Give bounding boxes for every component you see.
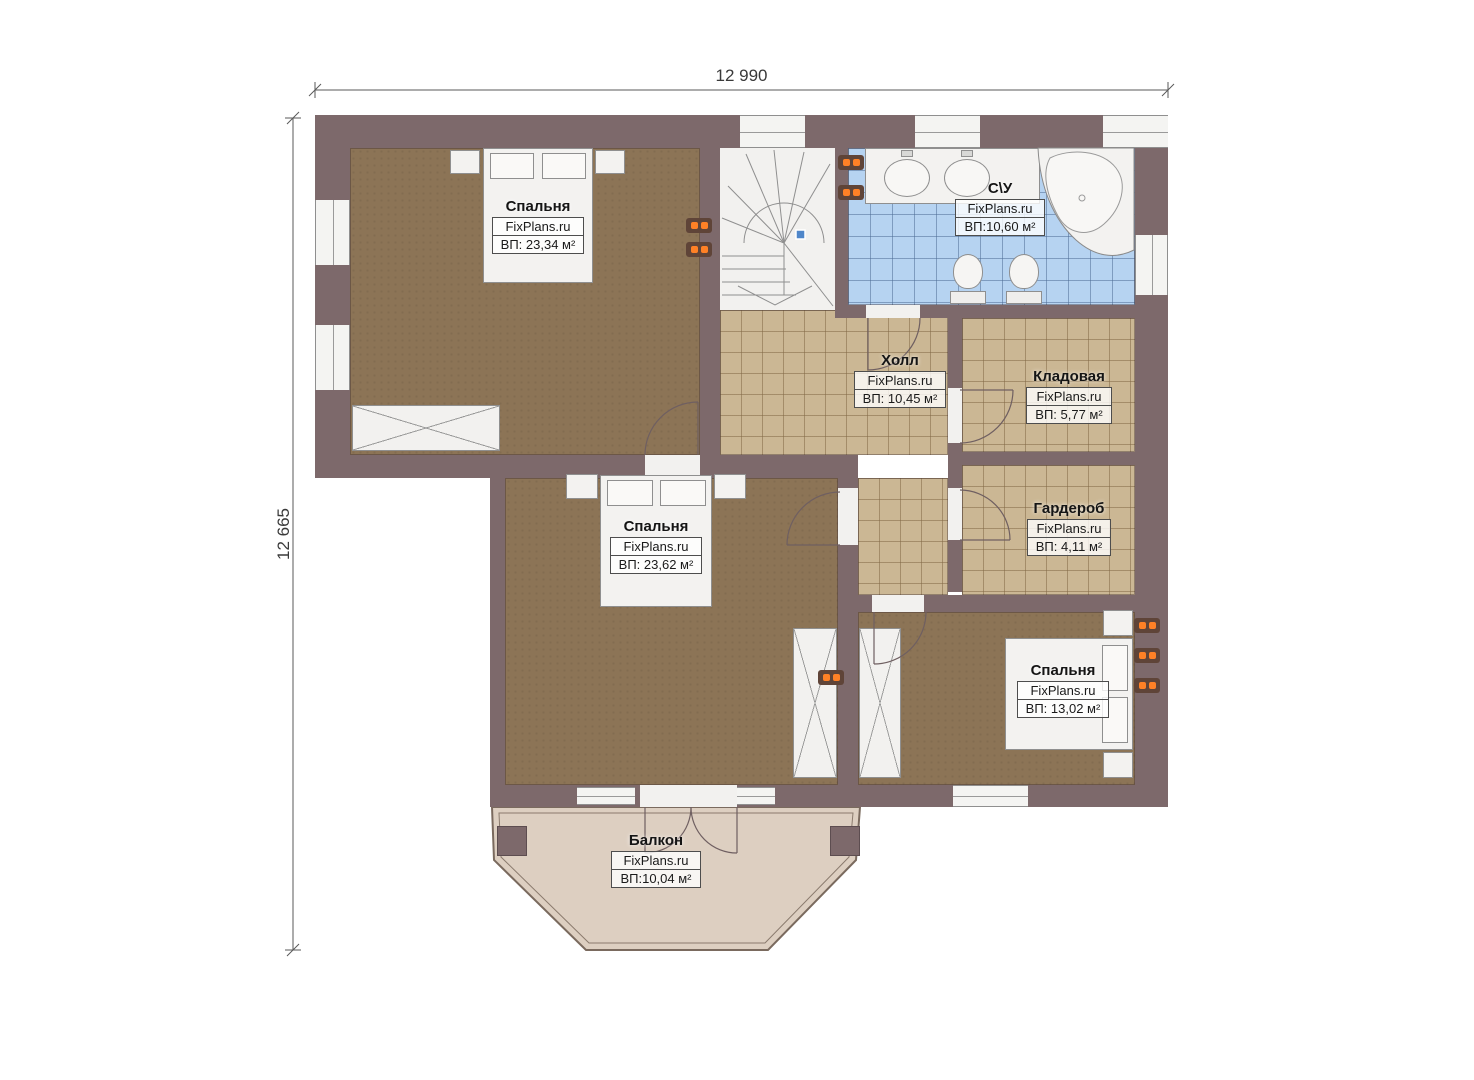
wall-segment [700, 115, 720, 478]
radiator-icon [838, 155, 864, 170]
room-label-storage: Кладовая FixPlans.ru ВП: 5,77 м² [1008, 368, 1130, 424]
radiator-icon [838, 185, 864, 200]
brand-watermark: FixPlans.ru [1018, 682, 1109, 699]
wall-segment [315, 115, 350, 478]
radiator-icon [818, 670, 844, 685]
faucet-icon [961, 150, 973, 157]
window [315, 200, 350, 265]
closet [352, 405, 500, 451]
window [315, 325, 350, 390]
closet [793, 628, 837, 778]
room-name: Гардероб [1034, 500, 1105, 517]
room-name: Спальня [1031, 662, 1096, 679]
wall-segment [490, 455, 505, 807]
toilet [1004, 254, 1044, 306]
window [577, 787, 635, 805]
room-name: С\У [988, 180, 1012, 197]
nightstand [714, 474, 746, 499]
brand-watermark: FixPlans.ru [493, 218, 584, 235]
room-area: ВП: 5,77 м² [1027, 405, 1110, 423]
room-label-hall: Холл FixPlans.ru ВП: 10,45 м² [842, 352, 958, 408]
room-label-bedroom-3: Спальня FixPlans.ru ВП: 13,02 м² [1002, 662, 1124, 718]
window [740, 115, 805, 148]
pillow [660, 480, 706, 506]
floor-plan-page: { "plan": { "type": "floor-plan", "brand… [0, 0, 1474, 1080]
radiator-icon [686, 218, 712, 233]
room-name: Кладовая [1033, 368, 1105, 385]
nightstand [566, 474, 598, 499]
brand-watermark: FixPlans.ru [956, 200, 1043, 217]
radiator-icon [1134, 618, 1160, 633]
room-label-bedroom-2: Спальня FixPlans.ru ВП: 23,62 м² [598, 518, 714, 574]
balcony-pillar [830, 826, 860, 856]
window [1135, 235, 1168, 295]
room-name: Спальня [506, 198, 571, 215]
room-area: ВП: 23,62 м² [611, 555, 702, 573]
room-area: ВП:10,60 м² [956, 217, 1043, 235]
window [953, 785, 1028, 807]
pillow [542, 153, 586, 179]
room-area: ВП: 4,11 м² [1028, 537, 1110, 555]
room-name: Холл [881, 352, 919, 369]
brand-watermark: FixPlans.ru [855, 372, 946, 389]
pillow [607, 480, 653, 506]
sink [884, 159, 930, 197]
door-opening [948, 488, 962, 540]
brand-watermark: FixPlans.ru [611, 538, 702, 555]
nightstand [1103, 610, 1133, 636]
radiator-icon [1134, 648, 1160, 663]
closet [859, 628, 901, 778]
balcony-pillar [497, 826, 527, 856]
door-opening [872, 595, 924, 612]
brand-watermark: FixPlans.ru [1028, 520, 1110, 537]
wall-segment [835, 148, 848, 318]
nightstand [1103, 752, 1133, 778]
brand-watermark: FixPlans.ru [612, 852, 699, 869]
room-area: ВП: 23,34 м² [493, 235, 584, 253]
nightstand [450, 150, 480, 174]
room-name: Спальня [624, 518, 689, 535]
staircase [720, 148, 835, 310]
toilet [948, 254, 988, 306]
room-label-wardrobe: Гардероб FixPlans.ru ВП: 4,11 м² [1008, 500, 1130, 556]
floor-corridor [858, 478, 948, 595]
stair-direction-marker [796, 230, 805, 239]
radiator-icon [1134, 678, 1160, 693]
door-opening [838, 488, 858, 545]
room-area: ВП: 13,02 м² [1018, 699, 1109, 717]
wall-segment [948, 452, 1135, 465]
faucet-icon [901, 150, 913, 157]
window [915, 115, 980, 148]
door-opening [640, 785, 737, 807]
room-label-bathroom: С\У FixPlans.ru ВП:10,60 м² [938, 180, 1062, 236]
radiator-icon [686, 242, 712, 257]
room-name: Балкон [629, 832, 683, 849]
brand-watermark: FixPlans.ru [1027, 388, 1110, 405]
pillow [490, 153, 534, 179]
dimension-left-label: 12 665 [274, 502, 294, 566]
room-area: ВП:10,04 м² [612, 869, 699, 887]
window [1103, 115, 1168, 148]
room-label-balcony: Балкон FixPlans.ru ВП:10,04 м² [592, 832, 720, 888]
dimension-top-label: 12 990 [315, 66, 1168, 86]
nightstand [595, 150, 625, 174]
wall-segment [1135, 115, 1168, 807]
door-opening [866, 305, 920, 318]
room-area: ВП: 10,45 м² [855, 389, 946, 407]
room-label-bedroom-1: Спальня FixPlans.ru ВП: 23,34 м² [480, 198, 596, 254]
